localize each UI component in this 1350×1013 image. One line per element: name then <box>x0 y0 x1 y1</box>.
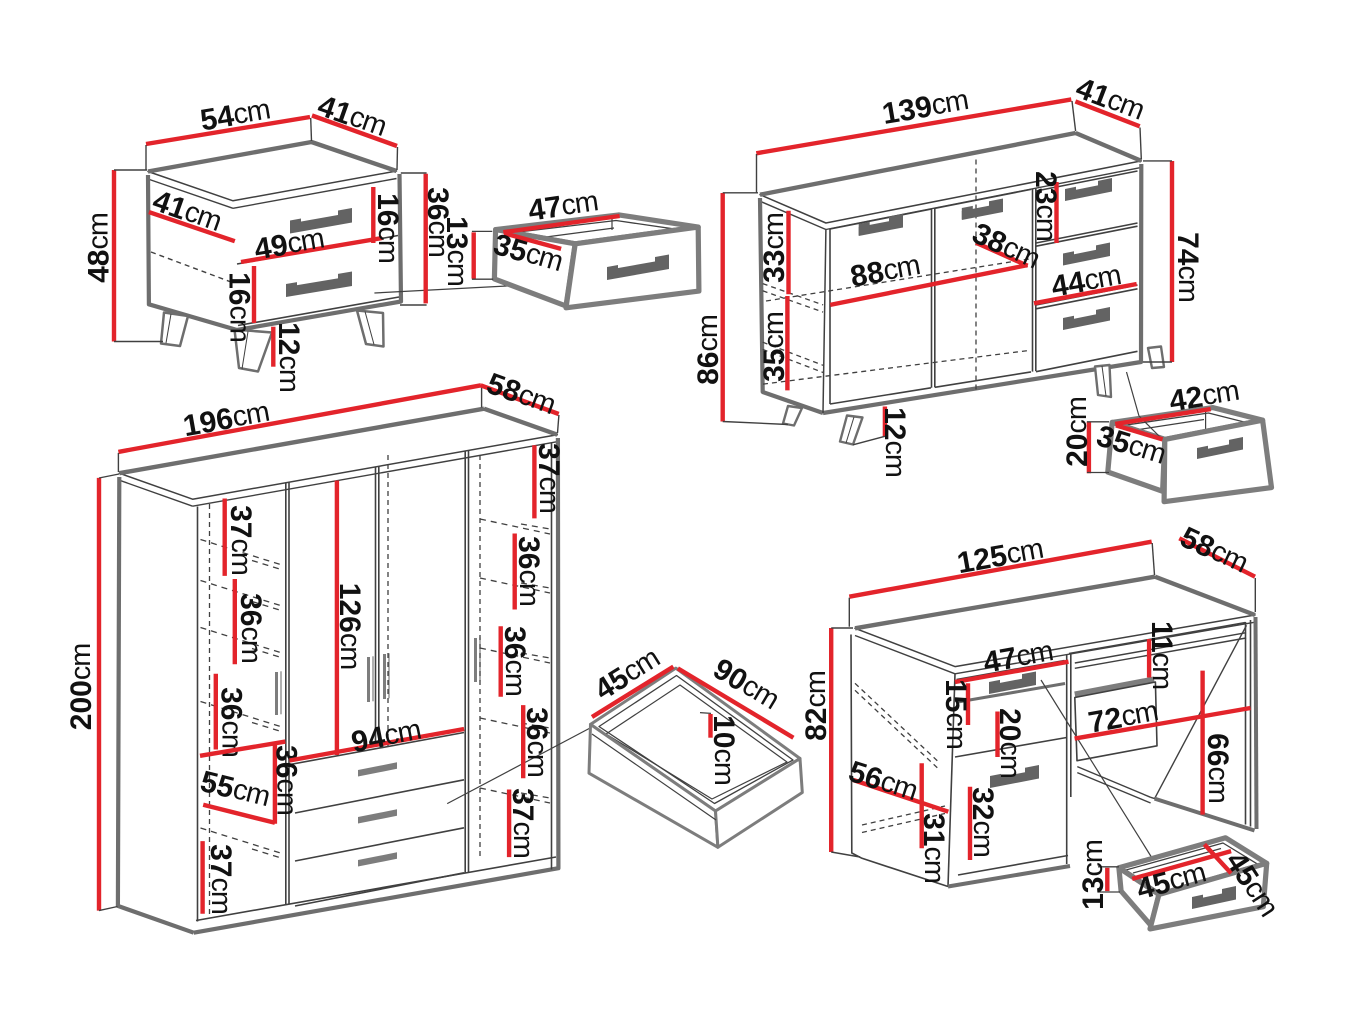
svg-text:23cm: 23cm <box>1030 171 1063 241</box>
svg-text:37cm: 37cm <box>205 844 238 914</box>
svg-text:11cm: 11cm <box>1146 621 1179 689</box>
svg-text:74cm: 74cm <box>1172 232 1205 302</box>
svg-text:36cm: 36cm <box>513 536 546 606</box>
svg-text:20cm: 20cm <box>1061 397 1094 467</box>
svg-text:13cm: 13cm <box>1077 840 1110 910</box>
svg-text:13cm: 13cm <box>441 216 474 286</box>
svg-text:31cm: 31cm <box>918 813 951 883</box>
svg-text:37cm: 37cm <box>225 505 258 575</box>
svg-text:32cm: 32cm <box>967 787 1000 857</box>
svg-text:35cm: 35cm <box>758 312 791 382</box>
svg-text:126cm: 126cm <box>334 583 367 669</box>
svg-text:66cm: 66cm <box>1202 733 1235 803</box>
svg-text:82cm: 82cm <box>800 671 833 741</box>
svg-text:37cm: 37cm <box>507 788 540 858</box>
svg-text:16cm: 16cm <box>223 272 256 342</box>
svg-text:36cm: 36cm <box>521 707 554 777</box>
svg-text:16cm: 16cm <box>372 193 405 263</box>
svg-text:48cm: 48cm <box>82 213 115 283</box>
svg-text:10cm: 10cm <box>708 715 741 785</box>
svg-text:36cm: 36cm <box>235 593 268 663</box>
svg-text:33cm: 33cm <box>758 213 791 283</box>
svg-text:12cm: 12cm <box>273 322 306 392</box>
svg-text:36cm: 36cm <box>270 745 303 815</box>
svg-text:12cm: 12cm <box>879 407 912 477</box>
svg-text:37cm: 37cm <box>533 443 566 513</box>
svg-text:200cm: 200cm <box>65 644 98 730</box>
svg-text:15cm: 15cm <box>940 679 973 749</box>
svg-text:86cm: 86cm <box>692 315 725 385</box>
svg-text:36cm: 36cm <box>499 626 532 696</box>
svg-text:20cm: 20cm <box>994 708 1027 778</box>
